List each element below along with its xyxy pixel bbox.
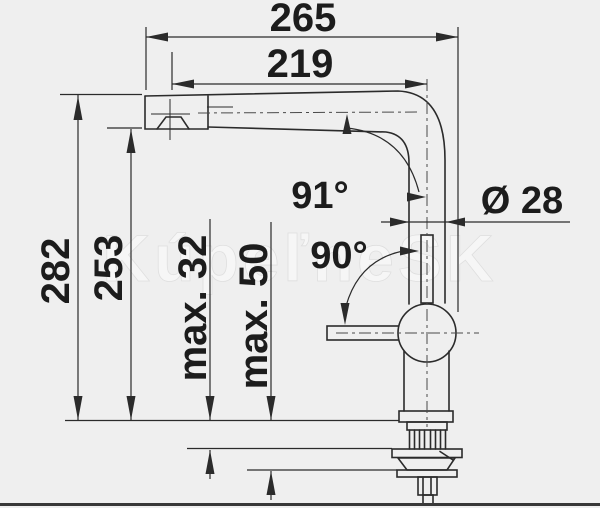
arrowhead (405, 80, 427, 89)
base-flange (399, 411, 453, 422)
spout-centerline (198, 112, 420, 113)
arrowhead (146, 33, 168, 42)
arrowhead (74, 96, 83, 120)
faucet-dimension-drawing: KúpeľneSK (0, 0, 600, 508)
mounting-plate (392, 449, 462, 458)
angle-spout-label: 91° (291, 175, 348, 217)
base-assembly (392, 351, 462, 505)
dim-total-height-label: 282 (34, 238, 78, 305)
arrowhead (407, 193, 426, 202)
dimension-deck-thickness-large: max. 50 (232, 222, 276, 500)
dim-pipe-diameter-label: Ø 28 (481, 180, 563, 222)
dim-spout-height-label: 253 (87, 235, 131, 302)
dim-deck-thickness-small-label: max. 32 (171, 235, 215, 382)
arrowhead (343, 114, 352, 134)
dim-spout-reach-label: 219 (267, 42, 334, 86)
dimension-deck-thickness-small: max. 32 (171, 219, 215, 479)
dim-deck-thickness-large-label: max. 50 (232, 243, 276, 390)
arrowhead (74, 396, 83, 420)
arrowhead (127, 396, 136, 420)
arrowhead (436, 33, 458, 42)
lower-washer (397, 470, 457, 477)
arrowhead (172, 80, 194, 89)
arrowhead (206, 396, 215, 420)
supply-hoses (410, 430, 446, 449)
mounting-nut (398, 458, 455, 470)
faucet-diagram-canvas: KúpeľneSK (0, 0, 600, 508)
dim-total-reach-label: 265 (270, 0, 337, 40)
arrowhead (127, 129, 136, 153)
threaded-stud (418, 477, 437, 495)
angle-lever-swing-label: 90° (310, 235, 367, 277)
aerator-outline (157, 117, 189, 129)
arrowhead (267, 396, 276, 420)
dimension-spout-reach: 219 (172, 42, 427, 90)
countertop-lines (65, 421, 399, 471)
arrowhead (267, 471, 276, 495)
arrowhead (206, 450, 215, 474)
watermark-text: KúpeľneSK (102, 221, 497, 295)
arrowhead (341, 303, 350, 325)
